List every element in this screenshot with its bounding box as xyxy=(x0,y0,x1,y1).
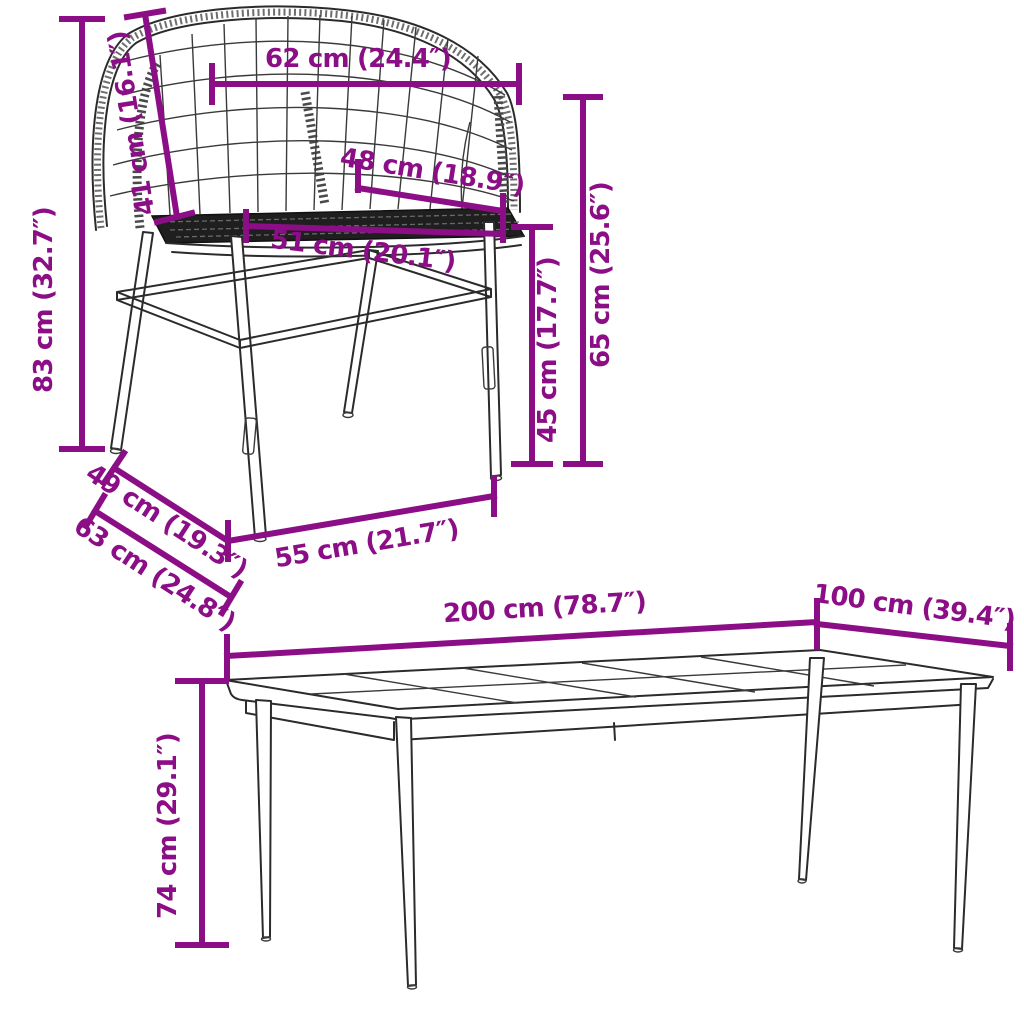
table-leg-front-left xyxy=(256,700,271,938)
dim-chair-seat-height: 45 cm (17.7″) xyxy=(514,227,563,464)
dim-chair-total-height-label: 83 cm (32.7″) xyxy=(29,207,59,393)
table-apron xyxy=(246,693,974,740)
table-foot-right xyxy=(954,948,963,952)
dim-chair-total-height-line xyxy=(62,19,102,449)
dim-chair-total-height: 83 cm (32.7″) xyxy=(29,19,102,449)
table-foot-front-left xyxy=(262,937,271,941)
dim-chair-base-width-label: 55 cm (21.7″) xyxy=(273,514,461,574)
table-drawing xyxy=(225,650,993,989)
dim-table-length: 200 cm (78.7″) xyxy=(227,587,817,677)
dim-table-length-label: 200 cm (78.7″) xyxy=(442,587,647,629)
dim-chair-armrest-height: 65 cm (25.6″) xyxy=(566,97,616,464)
dim-table-height-label: 74 cm (29.1″) xyxy=(153,733,183,919)
dim-table-height: 74 cm (29.1″) xyxy=(153,681,226,945)
product-dimension-diagram: 83 cm (32.7″) 41 cm (16.1″) 62 cm (24.4″… xyxy=(0,0,1024,1024)
table-foot-rear-right xyxy=(798,879,806,883)
diagram-canvas: 83 cm (32.7″) 41 cm (16.1″) 62 cm (24.4″… xyxy=(0,0,1024,1024)
dim-table-height-line xyxy=(178,681,226,945)
dim-table-width: 100 cm (39.4″) xyxy=(811,579,1016,668)
dim-chair-base-width: 55 cm (21.7″) xyxy=(228,478,494,574)
chair-leg-rear-right xyxy=(344,250,378,413)
dim-chair-top-width-label: 62 cm (24.4″) xyxy=(265,44,451,74)
table-foot-front-mid xyxy=(408,985,417,989)
dim-chair-armrest-height-label: 65 cm (25.6″) xyxy=(586,182,616,368)
table-leg-right xyxy=(954,684,976,949)
dim-chair-seat-height-label: 45 cm (17.7″) xyxy=(533,257,563,443)
chair-leg-front-left xyxy=(231,236,266,538)
chair-leg-rear-left xyxy=(111,232,153,450)
table-leg-front-mid xyxy=(396,717,416,986)
table-leg-rear-right xyxy=(799,658,824,880)
